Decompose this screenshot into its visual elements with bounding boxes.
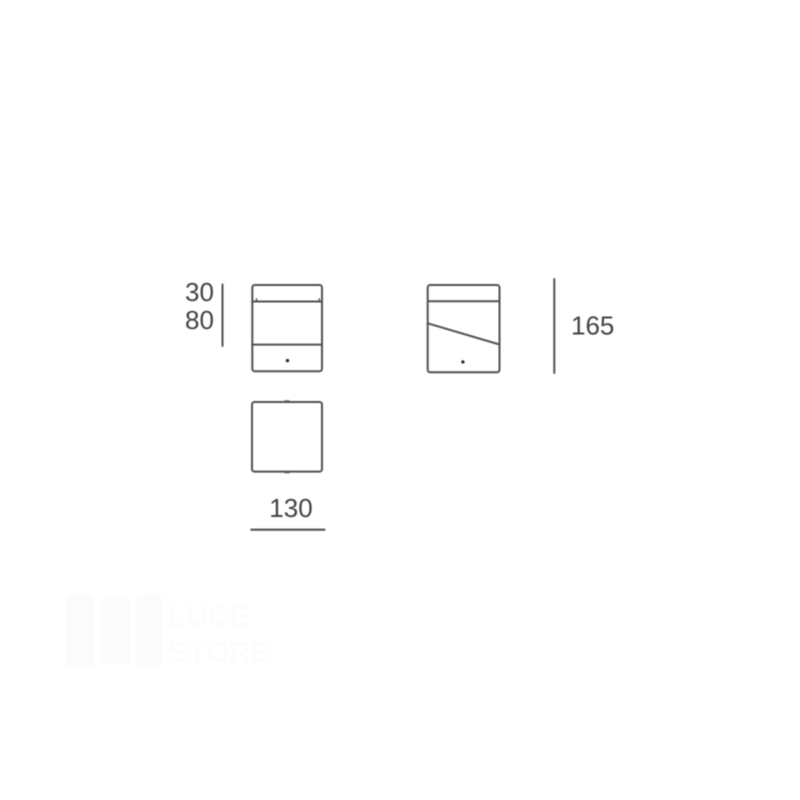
svg-text:165: 165 [571, 311, 614, 341]
svg-text:30: 30 [185, 277, 214, 307]
svg-text:80: 80 [185, 305, 214, 335]
svg-text:LUCE: LUCE [168, 600, 250, 633]
svg-text:130: 130 [269, 493, 312, 523]
svg-text:STORE: STORE [168, 636, 271, 669]
